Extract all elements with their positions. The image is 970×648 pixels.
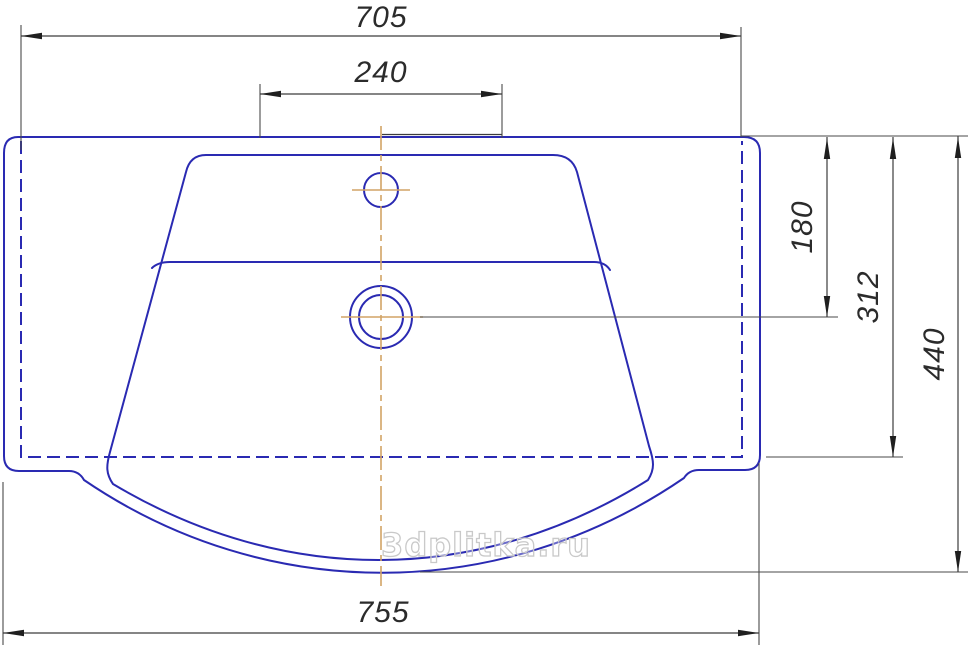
arrowhead-down: [824, 296, 830, 317]
arrowhead-up: [955, 137, 961, 158]
dim-label-705: 705: [354, 1, 407, 34]
arrowhead-right: [481, 91, 502, 97]
drawing-canvas: 705 240 755 180 312: [0, 0, 970, 648]
arrowhead-right: [720, 33, 741, 39]
dim-label-440: 440: [918, 327, 951, 380]
arrowhead-down: [890, 436, 896, 457]
washbasin-technical-drawing: 705 240 755 180 312: [0, 0, 970, 648]
dimension-top-to-back-edge: 312: [766, 137, 903, 457]
sink-outer-outline: [4, 137, 760, 573]
dim-label-180: 180: [786, 200, 819, 253]
arrowhead-up: [824, 138, 830, 159]
dim-label-755: 755: [356, 596, 409, 629]
dimension-top-to-drain: 180: [420, 137, 838, 317]
arrowhead-left: [21, 33, 42, 39]
dimension-overall-depth: 440: [420, 136, 968, 572]
basin-inner-outline: [107, 155, 653, 560]
arrowhead-right: [738, 630, 759, 636]
arrowhead-up: [890, 138, 896, 159]
arrowhead-down: [955, 551, 961, 572]
arrowhead-left: [3, 630, 24, 636]
watermark: 3dplitka.ru: [381, 526, 591, 564]
centerlines-group: [341, 126, 423, 586]
sink-outline-group: [4, 137, 760, 573]
dim-label-240: 240: [353, 56, 407, 89]
arrowhead-left: [260, 91, 281, 97]
dimension-faucet-span: 240: [260, 56, 502, 138]
dim-label-312: 312: [852, 270, 885, 323]
